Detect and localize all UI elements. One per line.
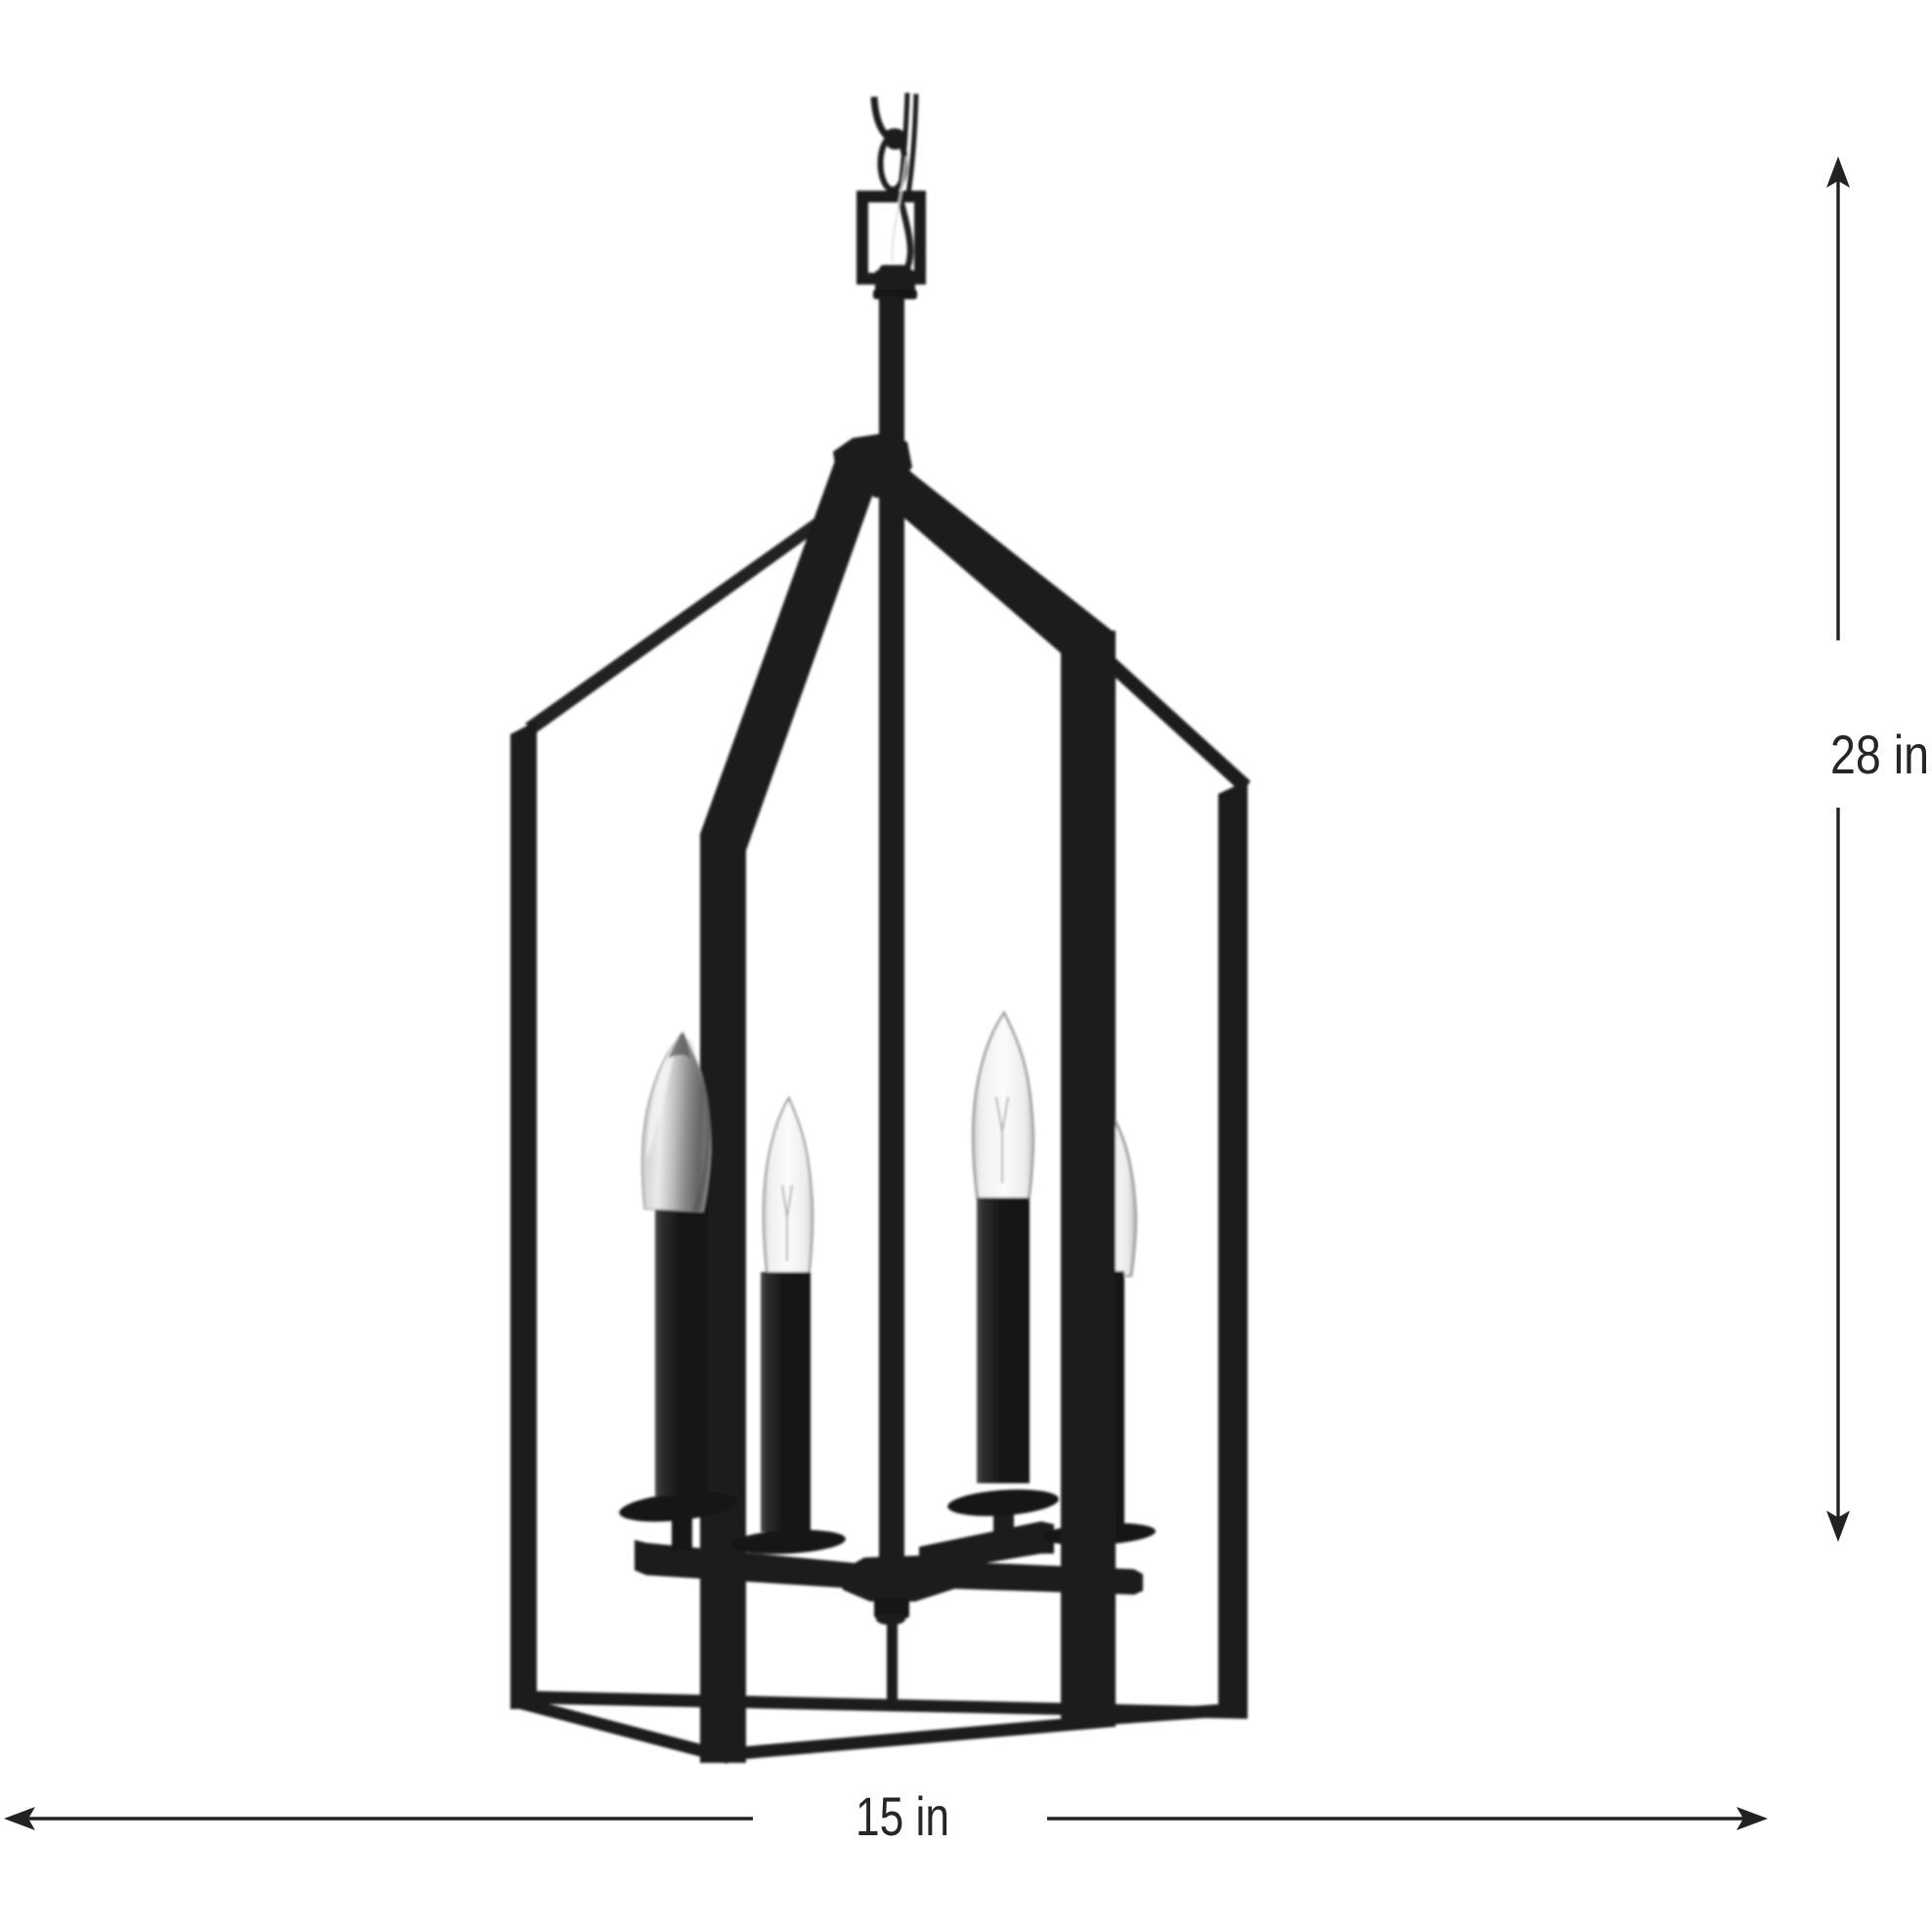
svg-text:15 in: 15 in xyxy=(856,1785,949,1847)
svg-text:28 in: 28 in xyxy=(1830,724,1929,785)
